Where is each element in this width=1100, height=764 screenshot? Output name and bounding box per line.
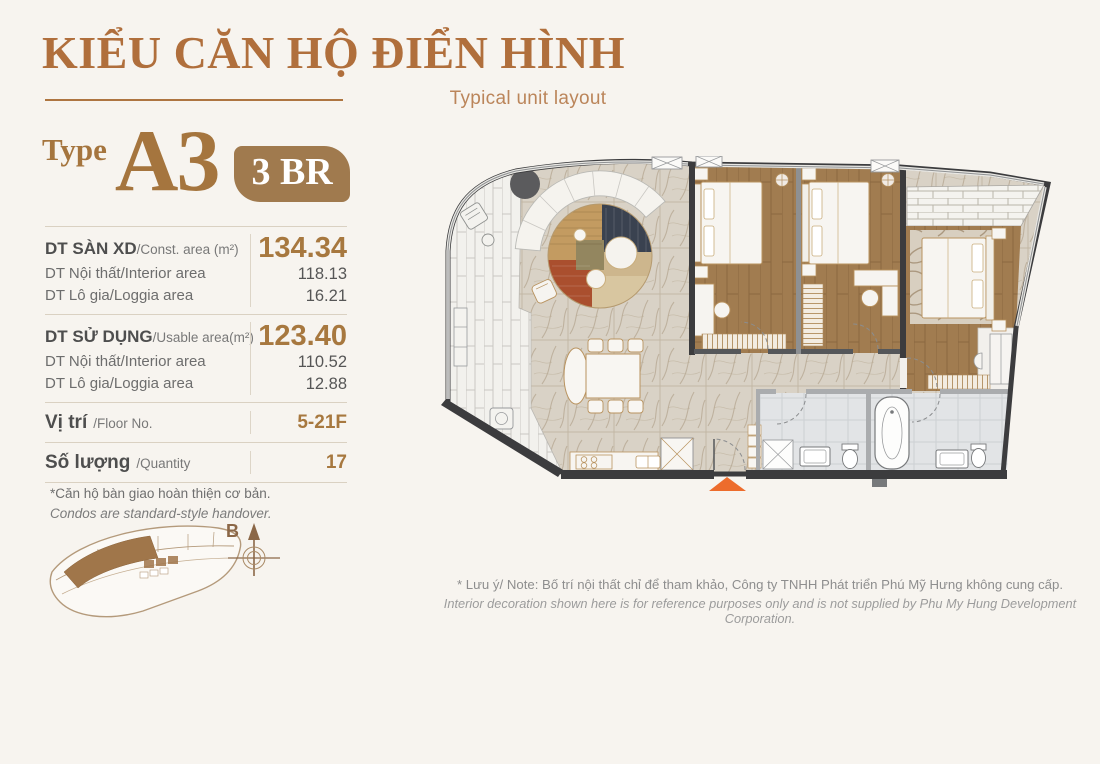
unit-type-block: Type A3 3 BR	[42, 124, 350, 202]
quantity-row: Số lượng/Quantity 17	[45, 442, 347, 483]
ceiling-icon	[882, 174, 895, 187]
dining-table	[586, 354, 640, 398]
floor-row: Vị trí/Floor No. 5-21F	[45, 402, 347, 442]
dining-table-oval	[564, 348, 588, 404]
usable-area-section: DT SỬ DỤNG/Usable area(m²) DT Nội thất/I…	[45, 314, 347, 402]
title-underline	[45, 99, 343, 101]
disclaimer-vi: * Lưu ý/ Note: Bố trí nội thất chỉ để th…	[430, 577, 1090, 592]
utility-cabinet	[454, 308, 467, 366]
wall-tab	[872, 479, 887, 487]
floor-plan-svg	[430, 156, 1090, 506]
usable-loggia-label: DT Lô gia/Loggia area	[45, 373, 250, 395]
usable-area-value: 123.40	[251, 322, 347, 351]
page-subtitle: Typical unit layout	[428, 88, 628, 110]
nightstand	[992, 320, 1006, 331]
living-room-furniture	[510, 169, 665, 308]
usable-interior-label: DT Nội thất/Interior area	[45, 351, 250, 373]
bed2-headboard	[802, 184, 809, 262]
type-label: Type	[42, 132, 107, 168]
quantity-label: Số lượng/Quantity	[45, 451, 250, 474]
master-headboard	[986, 236, 994, 320]
desk-chair	[714, 302, 730, 318]
entrance-arrow-marker	[709, 477, 746, 491]
wardrobe1	[702, 334, 786, 349]
nightstand	[992, 228, 1006, 239]
toilet	[972, 449, 986, 468]
nightstand	[694, 266, 708, 278]
bed1-headboard	[694, 184, 701, 262]
compass-label: B	[226, 521, 239, 541]
construction-interior-label: DT Nội thất/Interior area	[45, 263, 250, 285]
usable-loggia-value: 12.88	[251, 373, 347, 395]
side-table	[587, 270, 606, 289]
toilet	[843, 450, 858, 469]
closet2	[803, 284, 823, 346]
construction-interior-value: 118.13	[251, 263, 347, 285]
spec-table: DT SÀN XD/Const. area (m²) DT Nội thất/I…	[45, 226, 347, 483]
usable-interior-value: 110.52	[251, 351, 347, 373]
floor-value: 5-21F	[251, 411, 347, 434]
quantity-value: 17	[251, 451, 347, 474]
coffee-table	[605, 237, 637, 269]
bedrooms-badge: 3 BR	[234, 146, 349, 202]
nightstand	[802, 264, 816, 276]
floor-label: Vị trí/Floor No.	[45, 411, 250, 434]
master-loggia-floor	[907, 185, 1044, 226]
desk-chair	[862, 290, 879, 307]
desk2-return	[882, 286, 898, 316]
disclaimer: * Lưu ý/ Note: Bố trí nội thất chỉ để th…	[430, 577, 1090, 626]
small-table	[574, 229, 586, 241]
floor-plan	[430, 156, 1090, 511]
ceiling-icon	[776, 174, 789, 187]
compass-north-icon: B	[224, 518, 282, 586]
compass: B	[224, 518, 282, 591]
usable-area-label: DT SỬ DỤNG/Usable area(m²)	[45, 322, 250, 351]
bathtub	[875, 397, 909, 469]
type-code: A3	[115, 124, 219, 200]
desk2	[854, 270, 898, 286]
construction-area-label: DT SÀN XD/Const. area (m²)	[45, 234, 250, 263]
handover-note-vi: *Căn hộ bàn giao hoàn thiện cơ bản.	[50, 484, 272, 504]
page-title: KIỂU CĂN HỘ ĐIỂN HÌNH	[42, 24, 682, 82]
disclaimer-en: Interior decoration shown here is for re…	[430, 596, 1090, 626]
key-plan	[38, 516, 253, 643]
construction-loggia-label: DT Lô gia/Loggia area	[45, 285, 250, 307]
construction-area-section: DT SÀN XD/Const. area (m²) DT Nội thất/I…	[45, 226, 347, 314]
desk1	[694, 284, 714, 336]
construction-area-value: 134.34	[251, 234, 347, 263]
washer	[490, 408, 513, 429]
key-plan-svg	[38, 516, 253, 638]
nightstand	[694, 168, 708, 180]
loggia-table	[482, 234, 494, 246]
nightstand	[802, 168, 816, 180]
construction-loggia-value: 16.21	[251, 285, 347, 307]
